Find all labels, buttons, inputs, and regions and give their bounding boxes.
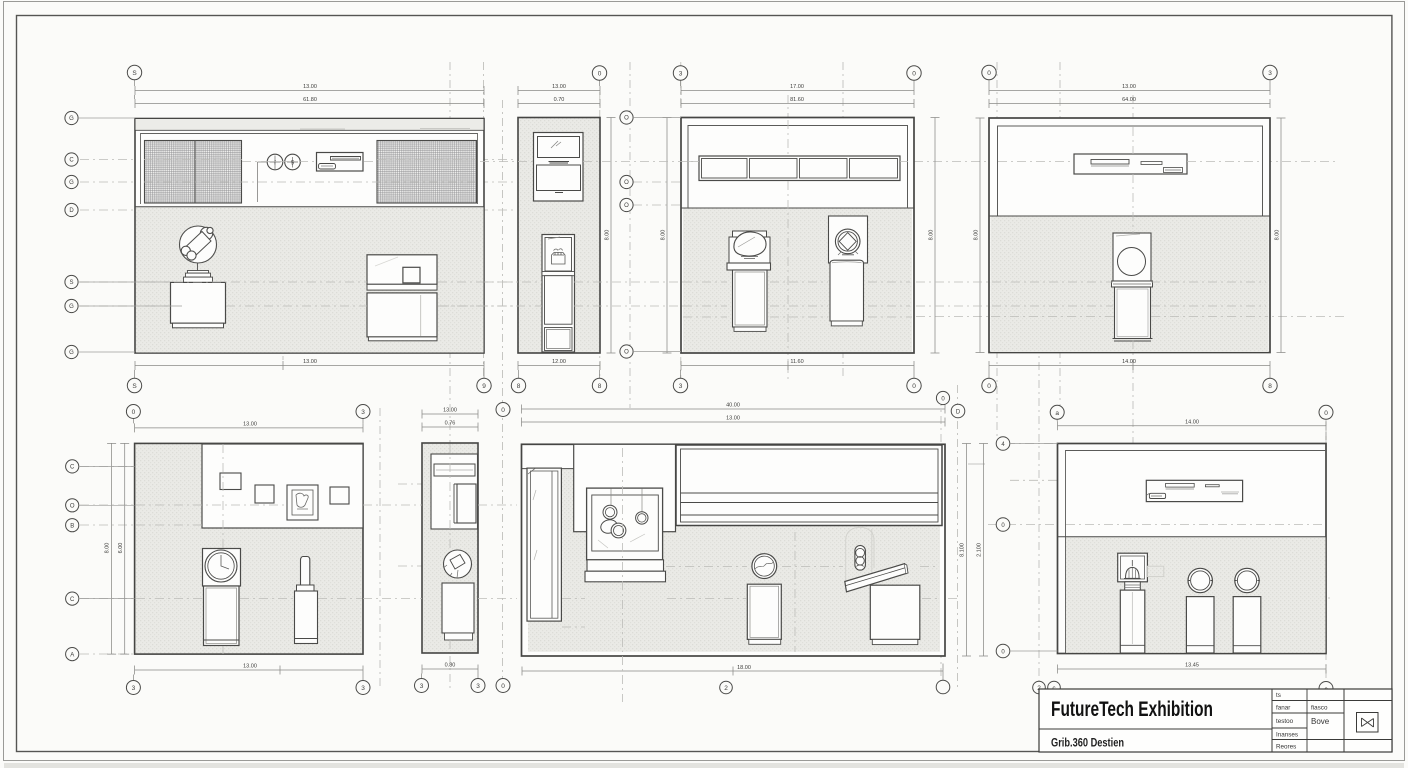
svg-text:13.00: 13.00 xyxy=(243,664,257,670)
svg-text:Bove: Bove xyxy=(1311,717,1330,726)
svg-text:G: G xyxy=(69,304,74,310)
svg-text:2: 2 xyxy=(724,685,728,692)
svg-text:D: D xyxy=(69,208,74,214)
svg-text:14.00: 14.00 xyxy=(1122,359,1136,365)
svg-text:3: 3 xyxy=(476,683,480,690)
svg-text:0.76: 0.76 xyxy=(445,421,456,427)
svg-text:C: C xyxy=(70,597,75,603)
svg-text:fanar: fanar xyxy=(1276,705,1290,712)
svg-text:13.00: 13.00 xyxy=(303,84,317,90)
svg-text:8.00: 8.00 xyxy=(1275,230,1281,241)
svg-text:13.00: 13.00 xyxy=(243,421,257,427)
svg-text:0: 0 xyxy=(132,409,136,416)
svg-text:11.60: 11.60 xyxy=(790,359,803,365)
svg-text:8: 8 xyxy=(517,383,521,390)
svg-text:3: 3 xyxy=(679,71,683,78)
svg-text:0: 0 xyxy=(987,383,991,390)
svg-text:3: 3 xyxy=(361,685,365,692)
svg-text:0: 0 xyxy=(1324,410,1328,417)
svg-text:a: a xyxy=(1055,410,1059,417)
svg-text:8.00: 8.00 xyxy=(605,230,611,241)
svg-text:13.00: 13.00 xyxy=(443,408,457,414)
svg-text:0: 0 xyxy=(987,70,991,77)
svg-text:O: O xyxy=(624,180,629,186)
svg-text:3: 3 xyxy=(1268,70,1272,77)
svg-text:G: G xyxy=(69,350,74,356)
svg-text:Reores: Reores xyxy=(1276,744,1296,751)
svg-text:O: O xyxy=(624,203,629,209)
svg-text:8.00: 8.00 xyxy=(929,230,935,241)
svg-text:C: C xyxy=(69,158,74,164)
svg-text:8.00: 8.00 xyxy=(105,543,111,554)
svg-text:9: 9 xyxy=(482,383,486,390)
svg-text:testoo: testoo xyxy=(1276,718,1294,725)
svg-text:D: D xyxy=(956,409,961,415)
svg-text:2.100: 2.100 xyxy=(977,543,983,557)
svg-text:8.00: 8.00 xyxy=(974,230,980,241)
svg-text:8: 8 xyxy=(598,383,602,390)
svg-text:0: 0 xyxy=(501,683,505,690)
svg-text:6.00: 6.00 xyxy=(118,543,124,554)
svg-text:G: G xyxy=(69,116,74,122)
svg-text:13.00: 13.00 xyxy=(1122,84,1136,90)
svg-text:13.00: 13.00 xyxy=(303,359,317,365)
svg-text:8.100: 8.100 xyxy=(960,543,966,557)
svg-text:FutureTech Exhibition: FutureTech Exhibition xyxy=(1051,698,1213,721)
svg-text:0: 0 xyxy=(912,71,916,78)
svg-text:13.00: 13.00 xyxy=(552,84,566,90)
svg-text:Grib.360 Destien: Grib.360 Destien xyxy=(1051,738,1124,750)
svg-text:ts: ts xyxy=(1276,692,1281,699)
svg-text:A: A xyxy=(70,652,74,658)
svg-text:B: B xyxy=(70,523,74,529)
svg-text:0: 0 xyxy=(912,383,916,390)
svg-text:3: 3 xyxy=(679,383,683,390)
svg-text:G: G xyxy=(69,180,74,186)
svg-text:12.00: 12.00 xyxy=(552,359,566,365)
svg-text:0.70: 0.70 xyxy=(554,97,565,103)
svg-text:3: 3 xyxy=(361,409,365,416)
svg-text:14.00: 14.00 xyxy=(1185,419,1199,425)
svg-text:8.00: 8.00 xyxy=(661,230,667,241)
svg-text:0: 0 xyxy=(501,407,505,414)
svg-text:S: S xyxy=(132,70,137,77)
svg-text:13.00: 13.00 xyxy=(726,416,740,422)
svg-text:61.80: 61.80 xyxy=(303,97,317,103)
svg-text:18.00: 18.00 xyxy=(737,665,751,671)
svg-text:O: O xyxy=(70,504,75,510)
svg-text:fiasco: fiasco xyxy=(1311,705,1328,712)
svg-text:3: 3 xyxy=(132,685,136,692)
svg-text:13.45: 13.45 xyxy=(1185,663,1199,669)
svg-text:17.00: 17.00 xyxy=(790,84,804,90)
svg-text:0.80: 0.80 xyxy=(445,663,456,669)
svg-text:O: O xyxy=(624,350,629,356)
svg-text:S: S xyxy=(132,383,137,390)
svg-text:40.00: 40.00 xyxy=(726,403,740,409)
svg-text:81.60: 81.60 xyxy=(790,97,804,103)
svg-text:64.00: 64.00 xyxy=(1122,97,1136,103)
svg-text:S: S xyxy=(69,280,73,286)
svg-text:0: 0 xyxy=(598,71,602,78)
svg-text:C: C xyxy=(70,465,75,471)
svg-text:8: 8 xyxy=(1268,383,1272,390)
svg-text:3: 3 xyxy=(420,683,424,690)
svg-text:Inanses: Inanses xyxy=(1276,732,1298,739)
svg-text:O: O xyxy=(624,116,629,122)
